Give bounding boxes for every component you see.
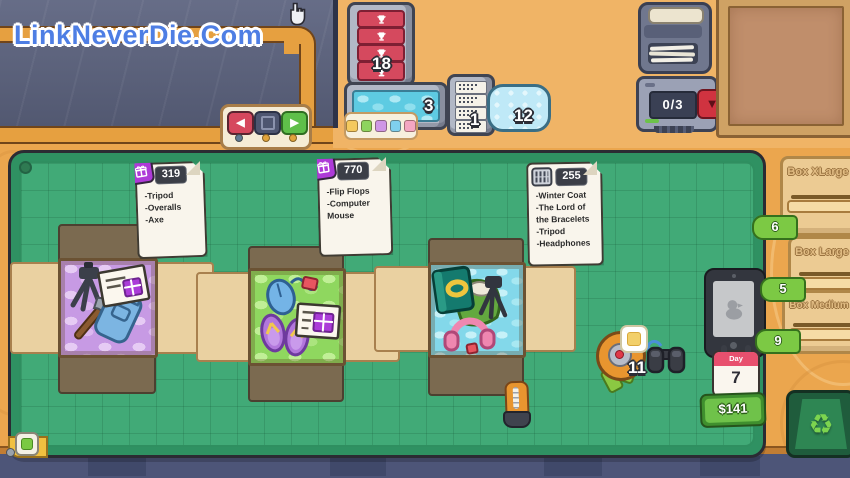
calendar: Day 7 (712, 350, 760, 398)
palette-swatch[interactable] (361, 120, 373, 132)
mat-corner-button[interactable] (15, 432, 39, 456)
box-count-tab-medium: 9 (755, 329, 801, 354)
order-counter-device: 0/3 ▼ (636, 76, 718, 132)
receipt-count: 1 (470, 110, 479, 130)
receipt (455, 81, 487, 94)
game-stage: LinkNeverDie.Com ◀ ▶ 18 3 (0, 0, 850, 478)
counter-feet (654, 126, 694, 133)
binoculars-item[interactable] (641, 336, 691, 380)
sticker-icon (627, 332, 641, 346)
box-count-tab-xlarge: 6 (752, 215, 798, 240)
note-fold (372, 157, 386, 171)
nav-right-button[interactable]: ▶ (281, 111, 308, 135)
calendar-day-label: Day (714, 352, 758, 366)
box-interior-gift-green[interactable] (248, 268, 346, 366)
order-number: 319 (154, 165, 187, 184)
palette-swatch[interactable] (346, 120, 358, 132)
tablet-camera-dot (732, 274, 736, 278)
order-note-2[interactable]: 770 -Flip Flops -Computer Mouse (317, 157, 394, 257)
hand-cursor (286, 1, 307, 27)
box-count-tab-large: 5 (760, 277, 806, 302)
dispenser-band (644, 25, 702, 38)
nav-dot (235, 134, 243, 142)
order-note-3[interactable]: 255 -Winter Coat -The Lord of the Bracel… (526, 161, 604, 266)
thermometer-tube (513, 387, 520, 409)
receipt (455, 94, 487, 107)
corkboard[interactable] (716, 0, 850, 138)
trophy-card (357, 27, 405, 45)
trophy-icon (376, 31, 387, 42)
duck-icon (721, 296, 747, 322)
order-items: -Winter Coat -The Lord of the Bracelets … (536, 189, 599, 250)
slot-opening (799, 272, 850, 276)
slot-opening (793, 323, 850, 327)
box-flap-right[interactable] (518, 266, 576, 352)
thermometer-bulb (503, 411, 531, 428)
order-items: -Tripod -Overalls -Axe (144, 189, 201, 227)
watermark: LinkNeverDie.Com (14, 20, 262, 51)
palette-swatch[interactable] (390, 120, 402, 132)
right-arrow-icon: ▶ (290, 117, 298, 129)
dispenser-paper-window (648, 43, 698, 64)
recycle-icon: ♻ (808, 408, 833, 441)
order-number: 770 (337, 162, 370, 181)
nav-dot (262, 134, 270, 142)
calendar-day-value: 7 (714, 368, 758, 388)
stop-square-icon (261, 116, 275, 130)
recycle-bin[interactable]: ♻ (786, 390, 850, 458)
dispenser-slot (648, 7, 704, 24)
gift-note-item[interactable] (98, 265, 149, 306)
money-amount: $141 (705, 397, 762, 423)
note-fold (583, 161, 597, 175)
box-interior-bubble[interactable] (428, 262, 526, 358)
tape-count: 11 (628, 358, 646, 378)
expand-icon (21, 438, 33, 450)
tablet-home-dot (730, 342, 737, 349)
box-flap-left[interactable] (374, 266, 434, 352)
left-arrow-icon: ◀ (236, 117, 244, 129)
money-display: $141 (699, 392, 766, 428)
bubble-wrap-count: 3 (424, 96, 433, 116)
mat-screw (19, 161, 32, 174)
paper-dispenser[interactable] (638, 2, 712, 74)
trophy-card (357, 10, 405, 28)
tablet-screen (713, 281, 754, 337)
trophy-count: 18 (372, 54, 391, 74)
wrap-color-palette (344, 112, 418, 140)
palette-swatch[interactable] (375, 120, 387, 132)
slot-ledge (787, 200, 850, 213)
note-fold (186, 161, 200, 175)
order-items: -Flip Flops -Computer Mouse (326, 185, 387, 222)
slot-opening (791, 195, 850, 199)
shredder-stripes-icon (531, 167, 552, 186)
nav-left-button[interactable]: ◀ (227, 111, 254, 135)
corkboard-surface (728, 6, 844, 126)
box-slot-label: Box XLarge (783, 166, 850, 178)
counter-screen: 0/3 (649, 91, 697, 119)
cushion-count: 12 (514, 106, 533, 126)
mat-corner-dot (6, 448, 15, 457)
box-slot-label: Box Large (791, 246, 850, 258)
order-note-1[interactable]: 319 -Tripod -Overalls -Axe (134, 161, 207, 259)
nav-stop-button[interactable] (254, 111, 281, 135)
tape-selected-indicator (620, 325, 648, 353)
trophy-icon (376, 14, 387, 25)
nav-dot (289, 134, 297, 142)
box-flap-left[interactable] (10, 262, 64, 354)
box-interior-gift-purple[interactable] (58, 258, 158, 358)
nav-panel: ◀ ▶ (220, 104, 312, 150)
gift-note-item[interactable] (296, 304, 340, 339)
palette-swatch[interactable] (404, 120, 416, 132)
book-item[interactable] (432, 267, 473, 314)
box-flap-left[interactable] (196, 272, 254, 362)
